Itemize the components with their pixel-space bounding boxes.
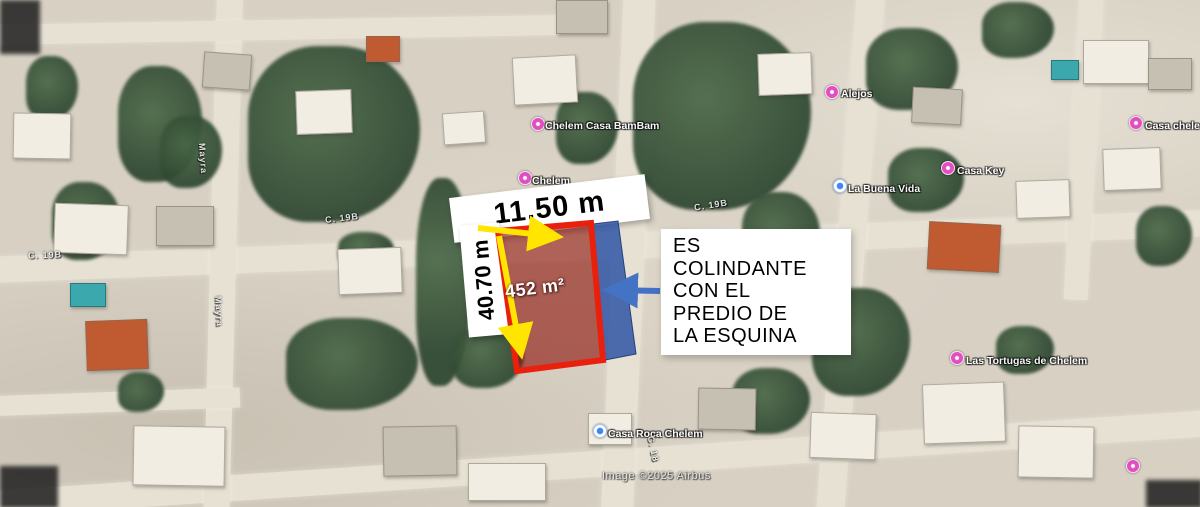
building (809, 412, 877, 460)
building (1018, 425, 1095, 478)
place-label: Casa Key (957, 165, 1004, 177)
building (698, 387, 757, 430)
note-line: CON EL (673, 280, 851, 303)
tree-cluster (633, 22, 811, 210)
shadow-patch (1146, 480, 1200, 507)
building (366, 36, 400, 62)
place-marker (518, 171, 532, 185)
shadow-patch (0, 466, 58, 507)
pool (70, 283, 106, 307)
place-label: Chelem Casa BamBam (545, 120, 659, 132)
building (442, 111, 486, 146)
place-marker (825, 85, 839, 99)
building (556, 0, 608, 34)
place-marker (950, 351, 964, 365)
tree-cluster (286, 318, 418, 410)
building (383, 425, 458, 476)
tree-cluster (888, 148, 964, 212)
place-marker (593, 424, 607, 438)
place-marker (1129, 116, 1143, 130)
place-label: Las Tortugas de Chelem (966, 355, 1087, 367)
building (156, 206, 214, 246)
building (337, 247, 403, 295)
tree-cluster (26, 56, 78, 120)
building (13, 112, 72, 159)
building (53, 203, 129, 256)
pool (1051, 60, 1079, 80)
building (911, 87, 963, 126)
adjacency-note: ES COLINDANTE CON EL PREDIO DE LA ESQUIN… (661, 229, 851, 355)
tree-cluster (1136, 206, 1192, 266)
building (927, 221, 1001, 273)
building (512, 54, 578, 105)
building (85, 319, 149, 371)
building (1015, 179, 1070, 219)
note-line: COLINDANTE (673, 258, 851, 281)
place-marker (833, 179, 847, 193)
building (468, 463, 546, 501)
street-label: Mayra (197, 143, 209, 175)
note-line: PREDIO DE (673, 303, 851, 326)
imagery-attribution: Image ©2025 Airbus (602, 470, 711, 482)
shadow-patch (0, 0, 40, 54)
street-label: C. 19B (28, 249, 62, 260)
building (202, 51, 252, 90)
building (295, 89, 353, 135)
place-label: La Buena Vida (848, 183, 920, 195)
note-line: ES (673, 235, 851, 258)
building (757, 52, 812, 96)
place-marker (1126, 459, 1140, 473)
tree-cluster (982, 2, 1054, 58)
place-marker (941, 161, 955, 175)
road (0, 15, 560, 45)
place-label: Alejos (841, 88, 873, 100)
note-line: LA ESQUINA (673, 325, 851, 348)
building (1102, 147, 1161, 191)
plot-area-label: 452 m² (504, 274, 566, 302)
street-label: Mayra (213, 296, 225, 327)
building (922, 382, 1006, 445)
satellite-map: Chelem Casa BamBam Chelem Alejos Casa ch… (0, 0, 1200, 507)
place-label: Casa chele (1145, 120, 1200, 132)
building (1083, 40, 1149, 84)
length-dimension-text: 40.70 m (468, 239, 501, 322)
building (1148, 58, 1192, 90)
building (132, 425, 225, 487)
place-marker (531, 117, 545, 131)
tree-cluster (248, 46, 420, 222)
